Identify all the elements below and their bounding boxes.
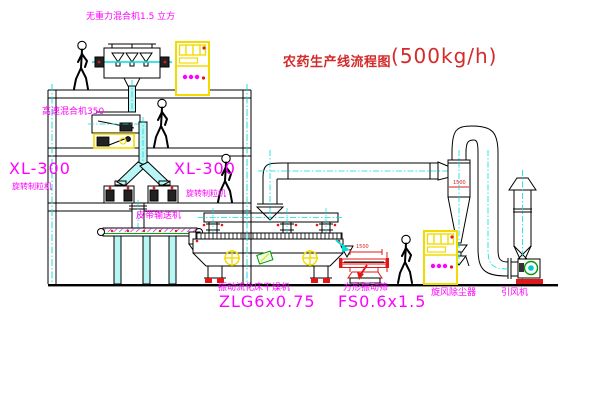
label-fan: 引风机 [501,289,528,298]
y-splitter-chute [117,162,169,186]
label-sieve-model: FS0.6x1.5 [338,294,426,310]
title-chinese: 农药生产线流程图 [283,51,391,70]
label-xl300-left: XL-300 [9,161,71,177]
belt-conveyor [98,228,203,284]
person-top-floor [74,41,88,89]
granulators [104,181,178,203]
label-xl300-right: XL-300 [174,161,236,177]
high-speed-mixer [88,112,144,148]
dim-sieve-length: 1500 [356,245,369,250]
label-granulator-right: 旋转制粒机 [186,190,226,198]
label-granulator-left: 旋转制粒机 [12,183,52,191]
cyclone-dust-collector [448,126,518,279]
cad-flowsheet-canvas: 农药生产线流程图 (500kg/h) 无重力混合机1.5 立方 高速混合机350… [0,0,600,403]
label-gravity-mixer: 无重力混合机1.5 立方 [86,13,175,22]
label-cyclone: 旋风除尘器 [431,289,476,298]
ground-line [48,284,558,286]
label-high-speed-mixer: 高速混合机350 [42,108,104,117]
feed-chute [139,117,147,168]
dim-cyclone: 1500 [453,181,466,186]
induced-draft-fan [516,259,543,284]
control-cabinet-1 [176,42,209,95]
person-ground [398,235,412,283]
diagram-title: 农药生产线流程图 (500kg/h) [283,44,498,70]
label-dryer-model: ZLG6x0.75 [219,294,316,310]
label-belt-conveyor: 皮带输送机 [136,212,181,221]
control-cabinet-2 [424,231,457,284]
fluid-bed-dryer [193,208,344,283]
person-second-floor [154,99,168,147]
title-capacity: (500kg/h) [391,44,497,68]
